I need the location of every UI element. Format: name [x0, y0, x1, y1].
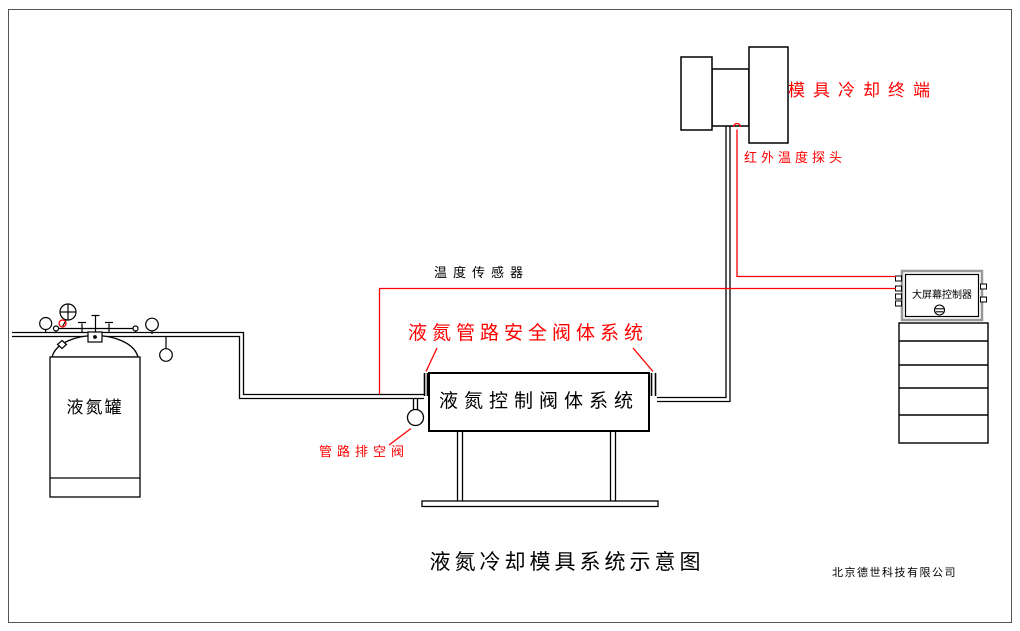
stand-base: [422, 501, 658, 507]
leader-line-right: [633, 348, 653, 372]
controller-cabinet: [899, 323, 988, 443]
tank-body: [50, 357, 140, 497]
schematic-page: 模具冷却终端 红外温度探头 温度传感器 液氮管路安全阀体系统 液氮控制阀体系统 …: [0, 0, 1020, 631]
controller-label: 大屏幕控制器: [903, 290, 981, 302]
leader-line-vent: [389, 429, 411, 446]
leader-line-left: [426, 348, 437, 372]
junction-dot: [94, 336, 97, 339]
page-border: [9, 10, 1012, 623]
stand-legs: [458, 431, 616, 501]
tank-label: 液氮罐: [50, 398, 140, 418]
terminal-left-block: [681, 57, 712, 130]
manifold-end: [54, 326, 59, 331]
vent-valve-icon: [408, 410, 424, 426]
terminal-pipe: [657, 126, 730, 402]
valve-icon: [160, 349, 173, 362]
safety-system-label: 液氮管路安全阀体系统: [408, 323, 648, 345]
mold-terminal: [681, 47, 788, 143]
valve-icon: [146, 318, 159, 331]
manifold-end: [133, 326, 138, 331]
diagram-title: 液氮冷却模具系统示意图: [397, 551, 737, 575]
terminal-middle-block: [712, 69, 749, 126]
vent-valve: [408, 399, 424, 426]
ir-probe-label: 红外温度探头: [744, 151, 846, 166]
mold-terminal-label: 模具冷却终端: [788, 81, 938, 101]
company-name: 北京德世科技有限公司: [832, 567, 957, 580]
vent-valve-label: 管路排空阀: [319, 445, 409, 460]
terminal-right-block: [749, 47, 788, 143]
control-valve-box-label: 液氮控制阀体系统: [429, 373, 649, 431]
temp-sensor-label: 温度传感器: [434, 266, 529, 281]
valve-icon: [40, 318, 52, 330]
